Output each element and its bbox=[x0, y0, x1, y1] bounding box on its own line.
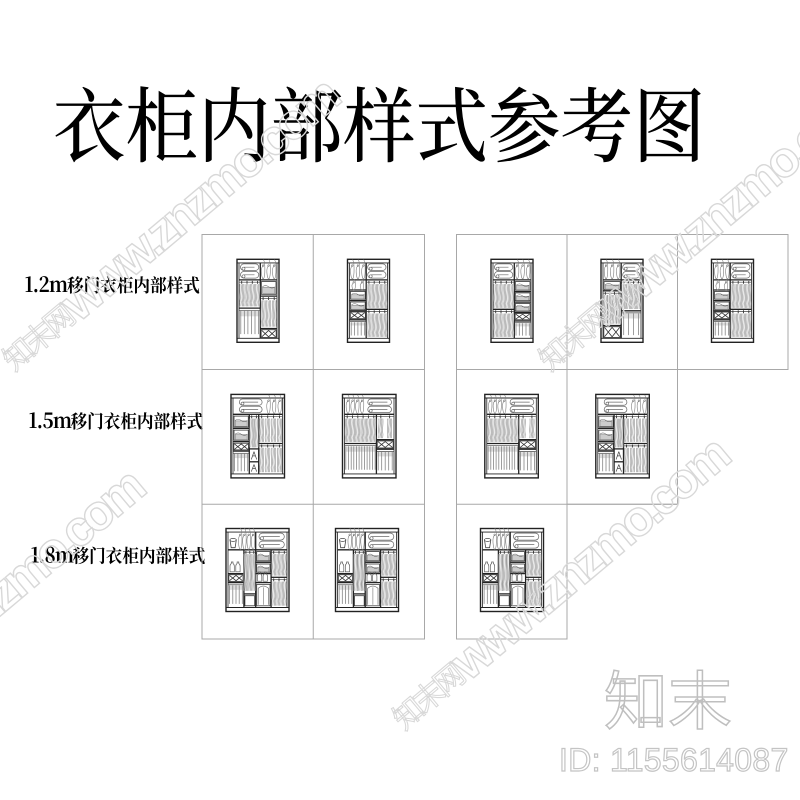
svg-text:ID: 1155614087: ID: 1155614087 bbox=[559, 742, 789, 778]
